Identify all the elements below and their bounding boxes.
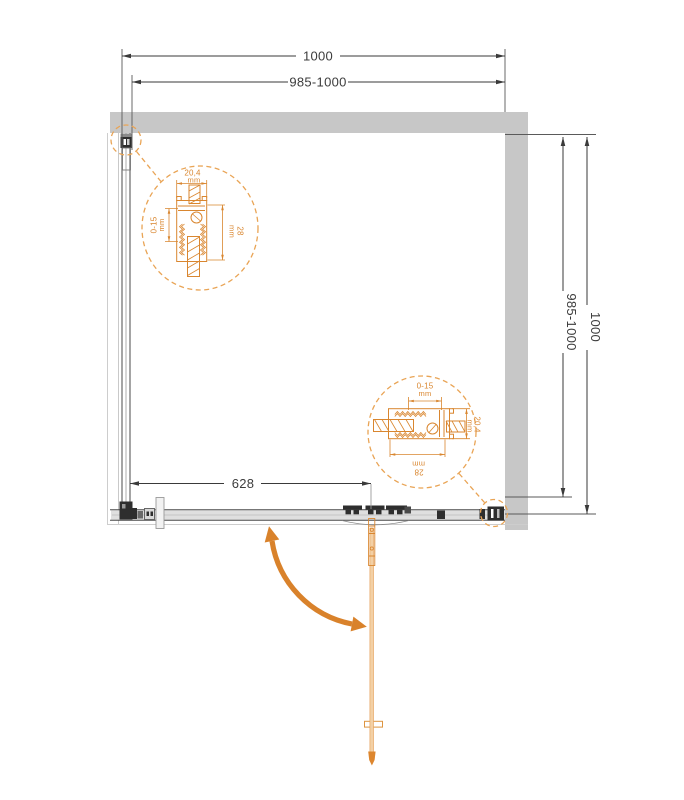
technical-drawing-page: 20,4 mm 0-15 mm 28 mm bbox=[0, 0, 684, 800]
dim-top-outer: 1000 bbox=[122, 49, 505, 64]
swing-arrowhead-right bbox=[351, 617, 367, 632]
callout-leader-2 bbox=[459, 474, 485, 503]
door-glass-open bbox=[370, 528, 374, 752]
dim-side-inner: 985-1000 bbox=[561, 137, 580, 497]
hardware-details bbox=[120, 134, 505, 529]
bottom-corner-bracket bbox=[120, 498, 165, 529]
door-swing-arrow bbox=[265, 526, 367, 631]
dim-side-outer: 1000 bbox=[585, 137, 604, 514]
bottom-rail bbox=[110, 510, 505, 521]
right-wall-bracket bbox=[480, 507, 505, 521]
detail-drawing-2 bbox=[374, 382, 482, 477]
dim-top-inner: 985-1000 bbox=[132, 75, 505, 90]
detail-drawing-1 bbox=[150, 169, 245, 277]
shower-plan-svg: 20,4 mm 0-15 mm 28 mm bbox=[0, 0, 684, 800]
top-wall bbox=[110, 112, 528, 133]
dim-top-inner-label: 985-1000 bbox=[289, 75, 346, 90]
dim-door-width: 628 bbox=[130, 476, 371, 491]
pivot-door bbox=[365, 519, 383, 766]
callout-leader-1 bbox=[137, 152, 164, 185]
door-stop bbox=[437, 511, 445, 520]
dim-side-outer-label: 1000 bbox=[588, 312, 603, 342]
fixed-glass-panel bbox=[119, 133, 131, 524]
dim-side-inner-label: 985-1000 bbox=[564, 293, 579, 350]
dim-top-outer-label: 1000 bbox=[303, 49, 333, 64]
door-bottom-cap bbox=[368, 752, 375, 766]
detail-callouts bbox=[111, 125, 508, 527]
right-wall bbox=[505, 112, 528, 530]
dim-door-width-label: 628 bbox=[232, 476, 255, 491]
swing-arrowhead-up bbox=[265, 526, 280, 542]
